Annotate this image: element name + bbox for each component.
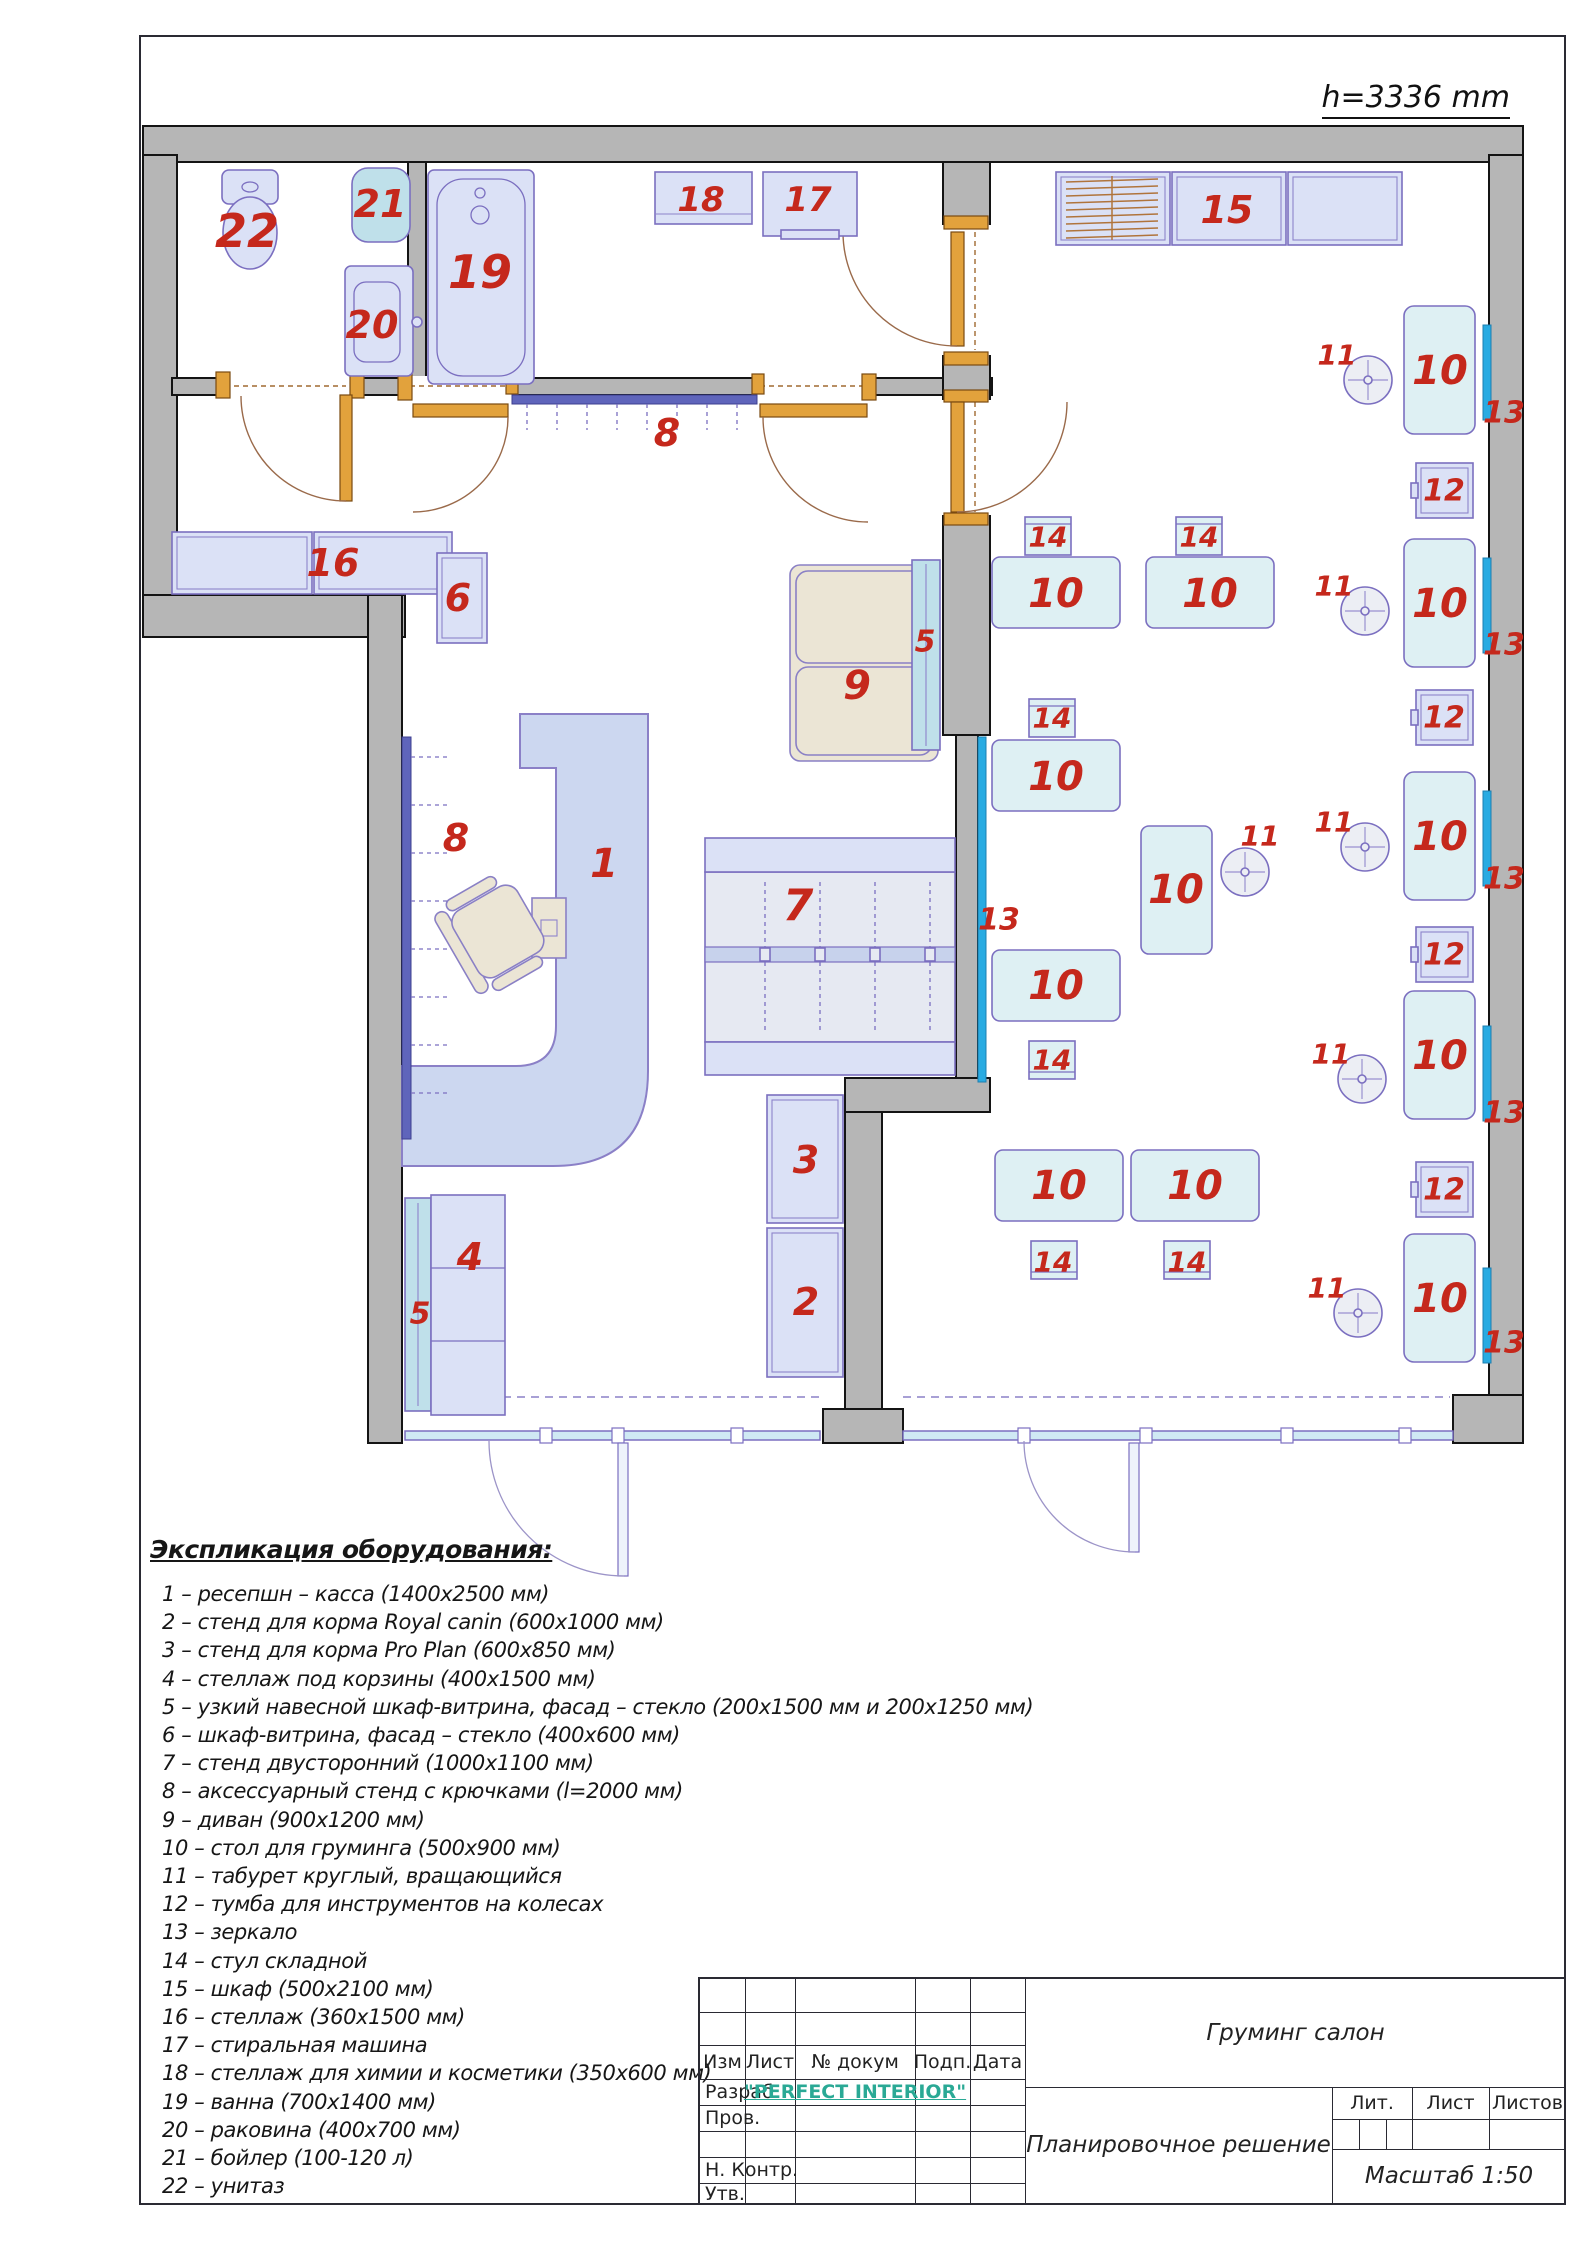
glazing-mullion (1281, 1428, 1293, 1443)
entrance-door-leaf (1129, 1443, 1139, 1552)
door-leaf (951, 402, 964, 512)
glazing-mullion (612, 1428, 624, 1443)
glazing-mullion (1018, 1428, 1030, 1443)
plan-label-13: 13 (1483, 628, 1525, 663)
wardrobe-15 (1288, 172, 1402, 245)
tb-sheet-title: Планировочное решение (1025, 2087, 1332, 2203)
legend-item: 1 – ресепшн – касса (1400х2500 мм) (162, 1580, 1050, 1608)
plan-label-14: 14 (1033, 1044, 1072, 1077)
plan-label-11: 11 (1241, 820, 1280, 853)
plan-label-18: 18 (677, 180, 724, 220)
plan-label-5: 5 (410, 1297, 431, 1332)
door-leaf (413, 404, 508, 417)
legend-item: 11 – табурет круглый, вращающийся (162, 1862, 1050, 1890)
wall (143, 595, 405, 637)
plan-label-11: 11 (1308, 1272, 1347, 1305)
storefront-glazing (903, 1431, 1453, 1440)
office-chair (429, 868, 555, 1001)
plan-label-1: 1 (590, 841, 618, 887)
legend-item: 4 – стеллаж под корзины (400х1500 мм) (162, 1665, 1050, 1693)
door-swing-arc (763, 417, 868, 522)
legend-item: 2 – стенд для корма Royal canin (600х100… (162, 1608, 1050, 1636)
door-leaf (951, 232, 964, 346)
plan-label-10: 10 (1412, 1276, 1468, 1322)
plan-label-10: 10 (1028, 754, 1084, 800)
plan-label-10: 10 (1182, 571, 1238, 617)
tb-developer: "PERFECT INTERIOR" (795, 2079, 915, 2105)
glazing-mullion (731, 1428, 743, 1443)
plan-label-12: 12 (1423, 701, 1465, 736)
accessory-stand-8 (512, 395, 757, 404)
plan-label-9: 9 (843, 663, 871, 709)
plan-label-12: 12 (1423, 938, 1465, 973)
plan-label-10: 10 (1028, 571, 1084, 617)
door-jamb (944, 390, 988, 402)
tb-col-data: Дата (970, 2045, 1025, 2079)
plan-label-7: 7 (783, 881, 814, 932)
doors (216, 216, 1067, 525)
plan-label-6: 6 (445, 576, 471, 620)
door-opening (941, 400, 992, 515)
plan-label-22: 22 (215, 204, 279, 258)
plan-label-14: 14 (1168, 1246, 1207, 1279)
glazing-mullion (1140, 1428, 1152, 1443)
plan-label-10: 10 (1412, 348, 1468, 394)
plan-label-17: 17 (784, 180, 832, 220)
legend-item: 3 – стенд для корма Pro Plan (600х850 мм… (162, 1636, 1050, 1664)
rail-connector (870, 948, 880, 961)
stand-7-rail (705, 947, 955, 962)
plan-label-2: 2 (793, 1280, 819, 1324)
stand-7-top (705, 838, 955, 872)
plan-label-13: 13 (1483, 1096, 1525, 1131)
plan-label-10: 10 (1031, 1163, 1087, 1209)
legend-item: 13 – зеркало (162, 1918, 1050, 1946)
wall (368, 595, 402, 1443)
wall (143, 126, 1523, 162)
title-block: Изм Лист № докум Подп. Дата Разраб. "PER… (698, 1977, 1566, 2205)
legend-item: 5 – узкий навесной шкаф-витрина, фасад –… (162, 1693, 1050, 1721)
plan-label-14: 14 (1029, 521, 1068, 554)
legend-item: 10 – стол для груминга (500х900 мм) (162, 1834, 1050, 1862)
door-jamb (398, 374, 412, 400)
plan-label-16: 16 (307, 541, 360, 585)
plan-label-14: 14 (1033, 702, 1072, 735)
tb-listov-header: Листов (1489, 2087, 1566, 2119)
plan-label-10: 10 (1412, 1033, 1468, 1079)
tb-project-title: Груминг салон (1025, 1979, 1566, 2087)
door-opening (222, 376, 352, 397)
tb-col-list: Лист (745, 2045, 795, 2079)
tb-row-prov: Пров. (700, 2105, 800, 2131)
tb-col-ndokum: № докум (795, 2045, 915, 2079)
glazing-mullion (540, 1428, 552, 1443)
legend-item: 9 – диван (900х1200 мм) (162, 1806, 1050, 1834)
plan-label-13: 13 (1483, 1326, 1525, 1361)
plan-label-13: 13 (978, 903, 1020, 938)
wall (1453, 1395, 1523, 1443)
tb-col-izm: Изм (700, 2045, 745, 2079)
door-jamb (862, 374, 876, 400)
rack-16 (172, 532, 312, 594)
door-jamb (944, 352, 988, 365)
legend-item: 14 – стул складной (162, 1947, 1050, 1975)
plan-label-15: 15 (1201, 188, 1254, 232)
plan-label-10: 10 (1412, 581, 1468, 627)
wall (845, 1112, 882, 1443)
wall (956, 735, 978, 1085)
plan-label-4: 4 (456, 1235, 483, 1279)
plan-label-5: 5 (915, 625, 936, 660)
stand-7-bottom (705, 1042, 955, 1075)
plan-label-3: 3 (793, 1138, 819, 1182)
washing-machine-door (781, 230, 839, 239)
wall (845, 1078, 990, 1112)
legend-item: 8 – аксессуарный стенд с крючками (l=200… (162, 1777, 1050, 1805)
plan-label-11: 11 (1315, 806, 1354, 839)
door-openings (222, 225, 992, 515)
door-swing-arc (413, 417, 508, 512)
wall (1489, 155, 1523, 1443)
door-jamb (216, 372, 230, 398)
rail-connector (815, 948, 825, 961)
legend-item: 7 – стенд двусторонний (1000х1100 мм) (162, 1749, 1050, 1777)
plan-label-21: 21 (354, 182, 407, 226)
plan-label-10: 10 (1148, 867, 1204, 913)
sink-tap (412, 317, 422, 327)
accessory-stand-8 (402, 737, 411, 1139)
rail-connector (760, 948, 770, 961)
legend-item: 12 – тумба для инструментов на колесах (162, 1890, 1050, 1918)
tb-list-header: Лист (1412, 2087, 1489, 2119)
tb-row-utv: Утв. (700, 2183, 800, 2205)
plan-label-11: 11 (1315, 570, 1354, 603)
plan-label-19: 19 (448, 245, 512, 299)
door-jamb (752, 374, 764, 394)
plan-label-13: 13 (1483, 862, 1525, 897)
door-swing-arc (843, 232, 957, 346)
plan-label-12: 12 (1423, 474, 1465, 509)
plan-label-13: 13 (1483, 396, 1525, 431)
door-leaf (340, 395, 352, 501)
stool (1221, 848, 1269, 896)
plan-label-20: 20 (346, 303, 399, 347)
tb-row-nkontr: Н. Контр. (700, 2157, 800, 2183)
plan-label-10: 10 (1412, 814, 1468, 860)
wall (823, 1409, 903, 1443)
plan-label-10: 10 (1167, 1163, 1223, 1209)
tb-scale: Масштаб 1:50 (1332, 2149, 1566, 2203)
plan-label-11: 11 (1312, 1038, 1351, 1071)
plan-label-14: 14 (1034, 1246, 1073, 1279)
door-leaf (760, 404, 867, 417)
door-jamb (944, 216, 988, 229)
plan-label-8: 8 (443, 816, 469, 860)
tb-col-podp: Подп. (915, 2045, 970, 2079)
rail-connector (925, 948, 935, 961)
glazing-mullion (1399, 1428, 1411, 1443)
tb-lit-header: Лит. (1332, 2087, 1412, 2119)
door-swing-arc (241, 396, 346, 501)
door-opening (941, 225, 992, 355)
legend-item: 6 – шкаф-витрина, фасад – стекло (400х60… (162, 1721, 1050, 1749)
plan-label-10: 10 (1028, 963, 1084, 1009)
plan-label-12: 12 (1423, 1173, 1465, 1208)
plan-label-14: 14 (1180, 521, 1219, 554)
basket-rack-4 (431, 1195, 505, 1415)
drawing-sheet: h=3336 mm (0, 0, 1590, 2246)
door-jamb (944, 513, 988, 525)
legend-title: Экспликация оборудования: (150, 1535, 1050, 1564)
plan-label-8: 8 (654, 411, 680, 455)
plan-label-11: 11 (1318, 339, 1357, 372)
